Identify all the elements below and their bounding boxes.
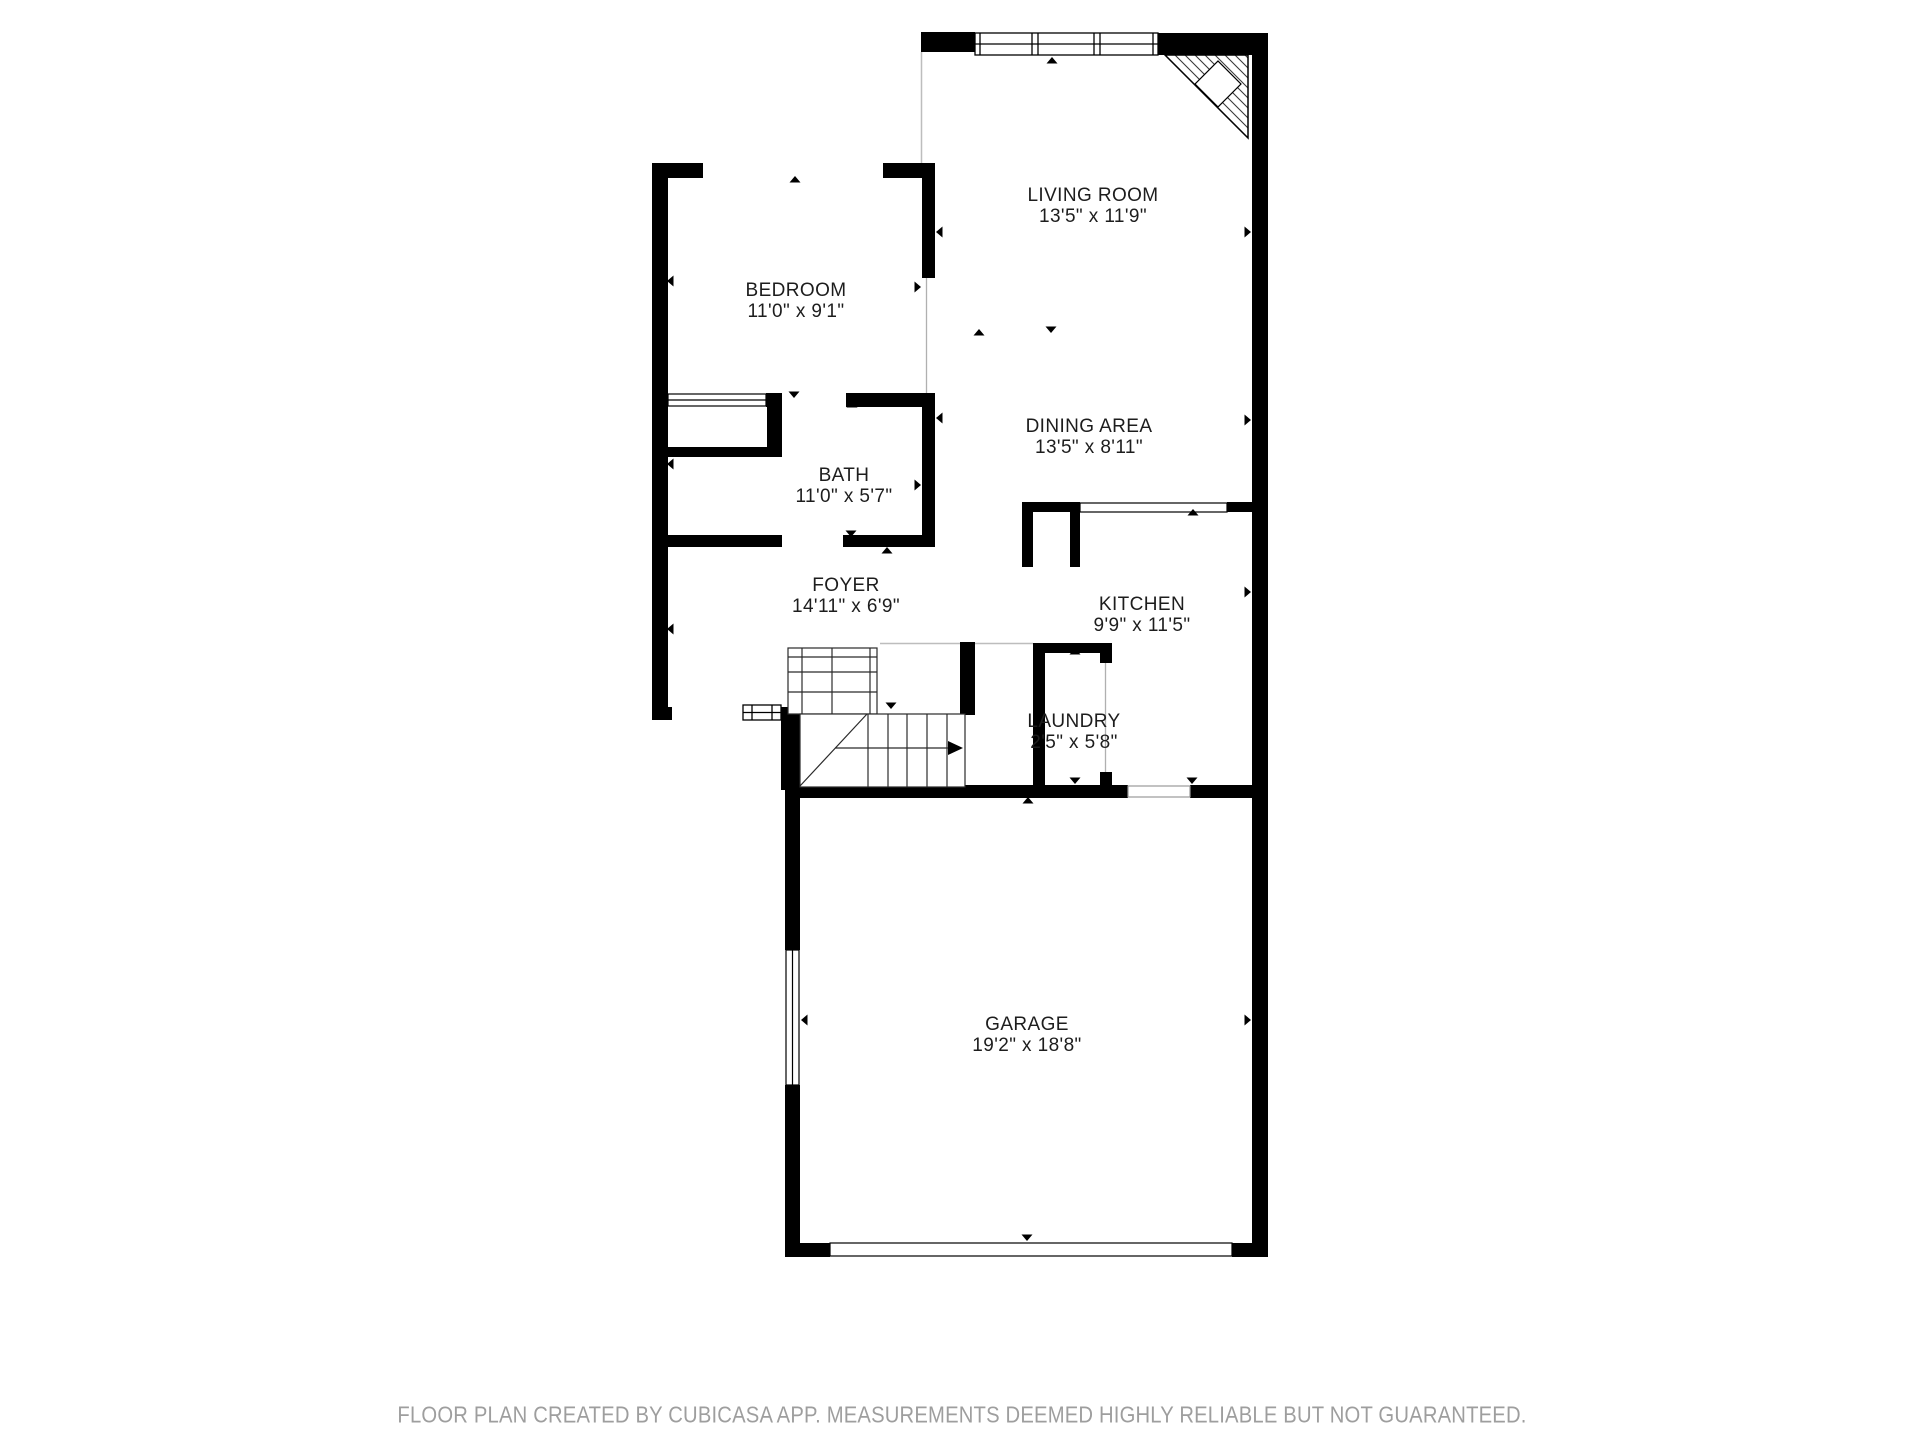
room-name: BEDROOM: [746, 280, 847, 301]
room-name: DINING AREA: [1026, 416, 1153, 437]
garage-window-icon: [786, 950, 799, 1085]
room-dimensions: 14'11" x 6'9": [792, 596, 900, 617]
room-dimensions: 2'5" x 5'8": [1027, 732, 1120, 753]
room-name: LIVING ROOM: [1027, 185, 1158, 206]
room-name: LAUNDRY: [1027, 711, 1120, 732]
room-label-dining-area: DINING AREA 13'5" x 8'11": [1026, 416, 1153, 458]
footer-disclaimer: FLOOR PLAN CREATED BY CUBICASA APP. MEAS…: [397, 1402, 1526, 1429]
room-dimensions: 19'2" x 18'8": [972, 1035, 1081, 1056]
garage-door-icon: [830, 1243, 1232, 1256]
opening-markers: [667, 57, 1251, 1241]
room-name: BATH: [819, 465, 870, 486]
room-dimensions: 13'5" x 11'9": [1027, 206, 1158, 227]
floor-plan-page: LIVING ROOM 13'5" x 11'9" BEDROOM 11'0" …: [0, 0, 1920, 1440]
room-label-living-room: LIVING ROOM 13'5" x 11'9": [1027, 185, 1158, 227]
entry-door-icon: [743, 705, 781, 720]
room-label-garage: GARAGE 19'2" x 18'8": [972, 1014, 1081, 1056]
room-label-laundry: LAUNDRY 2'5" x 5'8": [1027, 711, 1120, 753]
garage-entry-door-icon: [1128, 786, 1190, 797]
room-name: GARAGE: [985, 1014, 1069, 1035]
pass-through-icon: [1080, 503, 1227, 512]
floor-plan-drawing: [0, 0, 1920, 1440]
room-dimensions: 13'5" x 8'11": [1026, 437, 1153, 458]
room-dimensions: 11'0" x 9'1": [746, 301, 847, 322]
room-label-bedroom: BEDROOM 11'0" x 9'1": [746, 280, 847, 322]
room-label-bath: BATH 11'0" x 5'7": [795, 465, 892, 507]
room-label-kitchen: KITCHEN 9'9" x 11'5": [1093, 594, 1190, 636]
room-name: KITCHEN: [1099, 594, 1185, 615]
room-name: FOYER: [812, 575, 879, 596]
fireplace-icon: [1165, 55, 1248, 138]
window-icon: [975, 33, 1158, 55]
room-label-foyer: FOYER 14'11" x 6'9": [792, 575, 900, 617]
interior-walls: [652, 163, 1256, 787]
staircase-icon: [788, 648, 965, 787]
room-dimensions: 11'0" x 5'7": [795, 486, 892, 507]
room-boundary-lines: [880, 52, 1106, 772]
room-dimensions: 9'9" x 11'5": [1093, 615, 1190, 636]
closet-slider-icon: [668, 394, 766, 406]
